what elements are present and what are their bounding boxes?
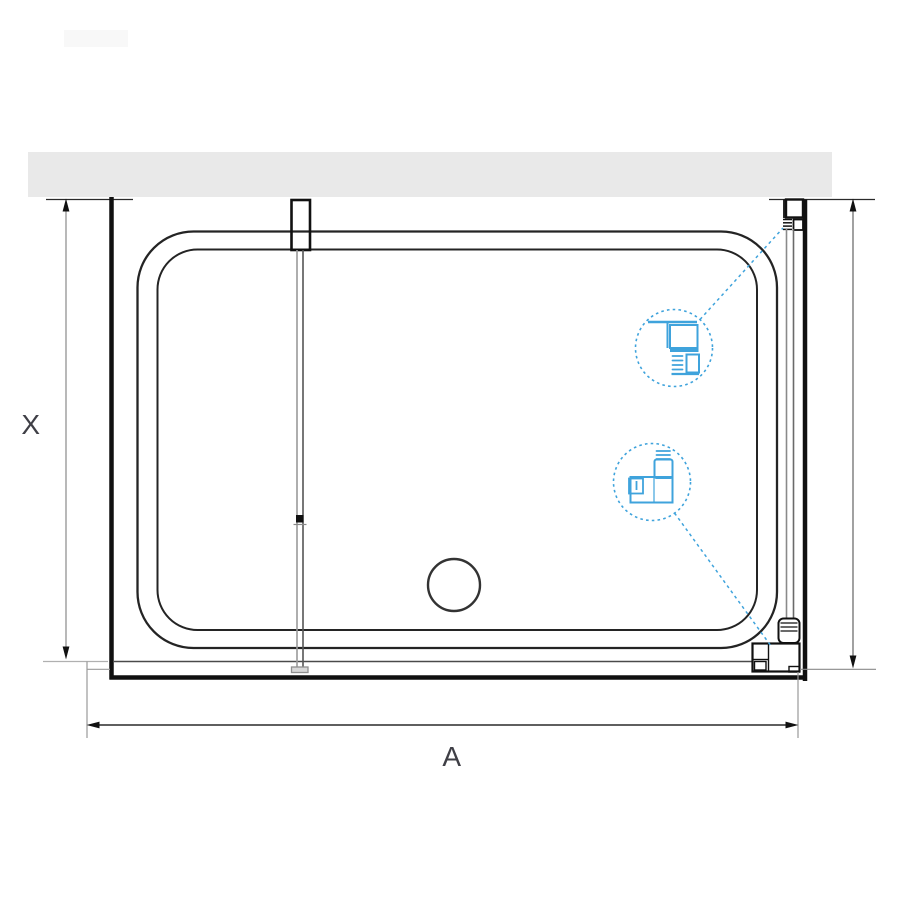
right-panel-wall-profile: [786, 200, 803, 218]
dimension-x-label: X: [21, 409, 40, 440]
right-panel-top-gasket-hatch: [783, 220, 792, 230]
dimension-right-arrow-down: [850, 656, 857, 669]
dimension-a-arrow-left: [87, 722, 100, 729]
dimension-x-arrow-down: [63, 647, 70, 660]
shower-enclosure-top-view-diagram: X A: [0, 0, 900, 900]
right-panel-floor-profile: [753, 644, 800, 672]
right-panel-wall-profile-inner: [794, 220, 804, 231]
dimension-right: [800, 199, 876, 670]
wall-band: [28, 152, 832, 197]
diagram-svg: X A: [0, 0, 900, 900]
center-panel-wall-bracket: [292, 200, 311, 250]
dimension-a-arrow-right: [786, 722, 799, 729]
drain-circle: [428, 559, 480, 611]
center-panel-foot: [292, 667, 309, 673]
tray-outer-rim: [138, 232, 778, 649]
dimension-x-arrow-up: [63, 199, 70, 212]
center-glass-panel: [292, 200, 311, 673]
upper-callout-leader-line: [700, 228, 783, 320]
center-panel-connector-dot: [296, 515, 304, 523]
dimension-right-arrow-up: [850, 199, 857, 212]
lower-callout-circle: [614, 444, 691, 521]
watermark-remnant: [64, 30, 128, 47]
dimension-x: X: [21, 199, 108, 662]
dimension-a-label: A: [442, 741, 461, 772]
tray-inner-rim: [158, 250, 758, 631]
